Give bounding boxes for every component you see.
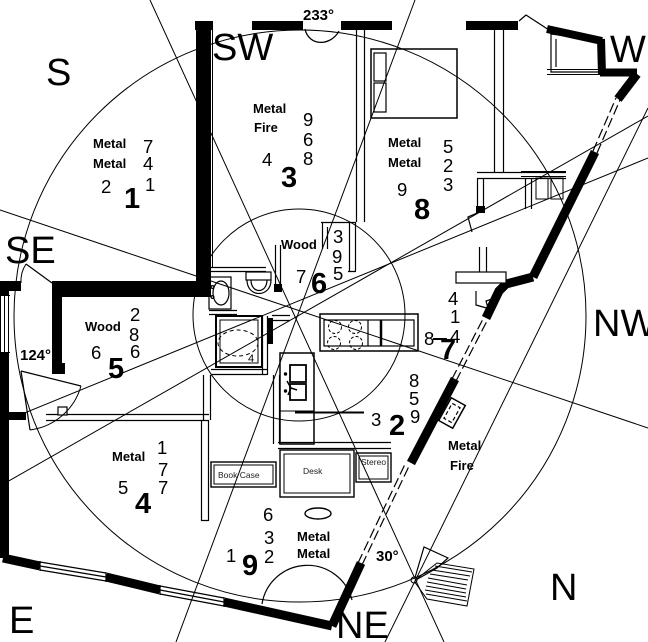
svg-text:6: 6 — [130, 341, 140, 362]
svg-text:3: 3 — [333, 226, 343, 247]
svg-text:4: 4 — [450, 326, 460, 347]
svg-text:8: 8 — [414, 194, 430, 226]
svg-text:1: 1 — [226, 545, 236, 566]
svg-text:1: 1 — [124, 183, 140, 215]
svg-text:Fire: Fire — [254, 120, 278, 135]
svg-text:Metal: Metal — [297, 529, 330, 544]
svg-text:233°: 233° — [303, 7, 334, 24]
svg-text:7: 7 — [296, 266, 306, 287]
svg-text:N: N — [550, 567, 577, 609]
svg-text:6: 6 — [91, 342, 101, 363]
svg-text:Metal: Metal — [112, 449, 145, 464]
svg-text:Wood: Wood — [281, 237, 317, 252]
svg-text:Metal: Metal — [93, 156, 126, 171]
svg-text:2: 2 — [130, 304, 140, 325]
svg-text:Metal: Metal — [297, 546, 330, 561]
svg-text:6: 6 — [311, 268, 327, 300]
svg-text:Book Case: Book Case — [218, 470, 260, 480]
svg-text:4: 4 — [262, 149, 272, 170]
svg-text:9: 9 — [242, 550, 258, 582]
svg-text:5: 5 — [443, 136, 453, 157]
svg-text:7: 7 — [158, 477, 168, 498]
svg-text:3: 3 — [371, 409, 381, 430]
svg-text:5: 5 — [333, 263, 343, 284]
svg-text:S: S — [46, 52, 71, 94]
svg-text:Fire: Fire — [450, 458, 474, 473]
svg-text:E: E — [9, 600, 34, 642]
svg-text:3: 3 — [281, 162, 297, 194]
svg-text:Wood: Wood — [85, 319, 121, 334]
svg-text:6: 6 — [263, 504, 273, 525]
svg-text:9: 9 — [410, 406, 420, 427]
svg-text:3: 3 — [443, 174, 453, 195]
svg-text:2: 2 — [264, 546, 274, 567]
svg-text:3: 3 — [264, 527, 274, 548]
svg-text:9: 9 — [397, 179, 407, 200]
svg-text:W: W — [610, 29, 646, 71]
svg-text:Desk: Desk — [303, 466, 323, 476]
svg-text:SW: SW — [212, 27, 273, 69]
svg-text:NW: NW — [593, 303, 648, 345]
svg-text:8: 8 — [303, 148, 313, 169]
svg-text:4: 4 — [135, 488, 151, 520]
svg-text:Stereo: Stereo — [361, 457, 386, 467]
svg-text:1: 1 — [157, 437, 167, 458]
svg-text:2: 2 — [389, 410, 405, 442]
svg-text:8: 8 — [424, 328, 434, 349]
svg-text:6: 6 — [303, 129, 313, 150]
svg-text:5: 5 — [108, 353, 124, 385]
svg-text:30°: 30° — [376, 548, 399, 565]
svg-text:NE: NE — [336, 605, 389, 642]
svg-text:Metal: Metal — [388, 155, 421, 170]
svg-text:SE: SE — [5, 230, 56, 272]
svg-text:1: 1 — [145, 174, 155, 195]
svg-text:Metal: Metal — [448, 438, 481, 453]
svg-text:Metal: Metal — [93, 136, 126, 151]
svg-text:2: 2 — [101, 176, 111, 197]
svg-text:4: 4 — [248, 353, 254, 365]
svg-text:124°: 124° — [20, 347, 51, 364]
svg-text:1: 1 — [450, 306, 460, 327]
svg-text:9: 9 — [303, 109, 313, 130]
svg-text:4: 4 — [143, 153, 153, 174]
svg-text:Metal: Metal — [388, 135, 421, 150]
svg-text:Metal: Metal — [253, 101, 286, 116]
svg-text:2: 2 — [443, 155, 453, 176]
svg-text:5: 5 — [118, 477, 128, 498]
